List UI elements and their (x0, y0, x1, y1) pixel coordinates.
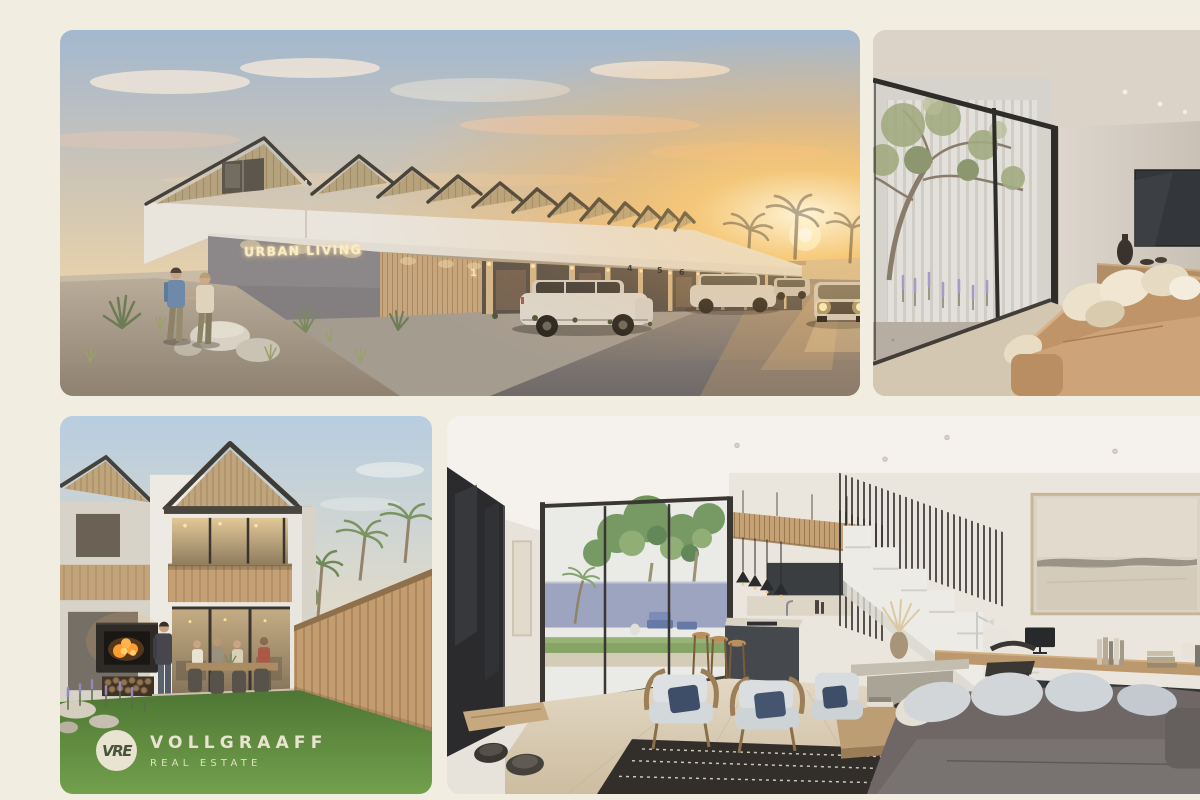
living-room-illustration (873, 30, 1200, 396)
unit-number-6: 6 (679, 268, 685, 277)
wall-artwork (1032, 494, 1200, 613)
brand-name: VOLLGRAAFF (150, 733, 328, 753)
photo-backyard-dining: VRE VOLLGRAAFF REAL ESTATE (60, 416, 432, 794)
photo-collage: URBAN LIVING 1 4 5 6 (0, 0, 1200, 800)
photo-open-plan-interior (447, 416, 1200, 794)
brand-text: VOLLGRAAFF REAL ESTATE (150, 733, 328, 769)
unit-number-4: 4 (627, 264, 633, 273)
wall-tv (1135, 170, 1200, 246)
brand-logo: VRE VOLLGRAAFF REAL ESTATE (96, 730, 328, 771)
urban-living-sign: URBAN LIVING (244, 242, 363, 259)
sun-bloom-overlay (60, 30, 860, 360)
vre-logo-icon: VRE (96, 730, 137, 771)
open-plan-illustration (447, 416, 1200, 794)
unit-number-5: 5 (657, 266, 663, 275)
development-name: URBAN LIVING (244, 242, 363, 259)
unit-number-1: 1 (470, 268, 477, 279)
logo-monogram: VRE (102, 742, 131, 760)
gray-sofa (867, 670, 1200, 794)
photo-living-room-interior (873, 30, 1200, 396)
photo-exterior-street: URBAN LIVING 1 4 5 6 (60, 30, 860, 396)
brand-tagline: REAL ESTATE (150, 758, 328, 769)
exterior-street-illustration (60, 30, 860, 396)
